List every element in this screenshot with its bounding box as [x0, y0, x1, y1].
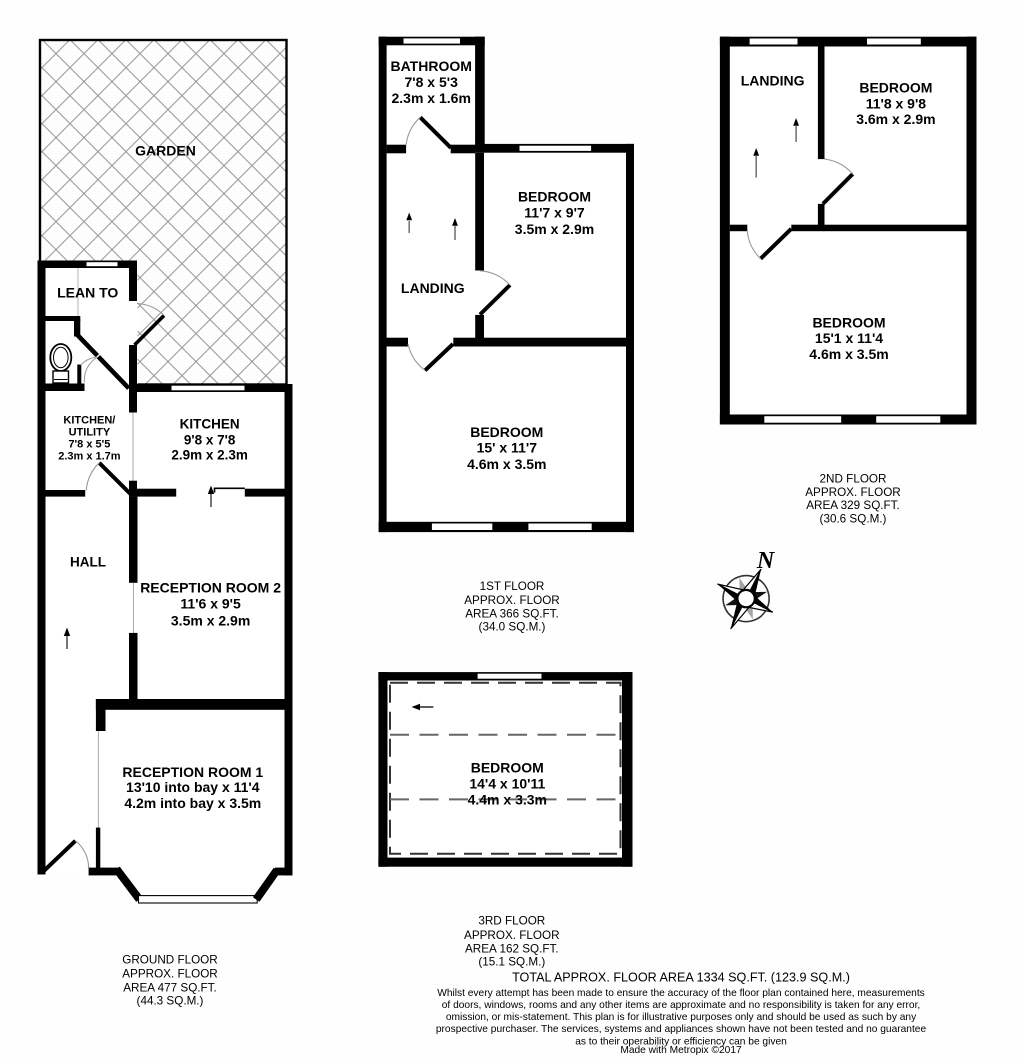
svg-text:13'10 into bay x 11'4: 13'10 into bay x 11'4	[126, 779, 260, 795]
svg-text:AREA 329 SQ.FT.: AREA 329 SQ.FT.	[806, 499, 900, 512]
svg-text:2.3m x 1.6m: 2.3m x 1.6m	[392, 90, 471, 106]
svg-text:KITCHEN: KITCHEN	[180, 417, 240, 432]
svg-text:omission, or mis-statement. Th: omission, or mis-statement. This plan is…	[446, 1012, 917, 1023]
svg-text:15' x 11'7: 15' x 11'7	[477, 440, 538, 456]
svg-text:KITCHEN/: KITCHEN/	[63, 415, 115, 427]
svg-text:UTILITY: UTILITY	[69, 426, 111, 438]
svg-text:4.6m x 3.5m: 4.6m x 3.5m	[809, 346, 888, 362]
svg-text:(34.0 SQ.M.): (34.0 SQ.M.)	[479, 621, 546, 634]
svg-text:11'7 x 9'7: 11'7 x 9'7	[524, 205, 585, 221]
svg-text:4.6m x 3.5m: 4.6m x 3.5m	[467, 456, 546, 472]
svg-text:7'8 x 5'3: 7'8 x 5'3	[405, 74, 459, 90]
svg-text:BEDROOM: BEDROOM	[471, 760, 544, 776]
svg-text:Made with Metropix ©2017: Made with Metropix ©2017	[620, 1045, 742, 1056]
svg-text:BEDROOM: BEDROOM	[470, 424, 543, 440]
svg-text:3.5m x 2.9m: 3.5m x 2.9m	[515, 221, 594, 237]
svg-text:7'8 x 5'5: 7'8 x 5'5	[68, 439, 110, 451]
svg-text:15'1 x 11'4: 15'1 x 11'4	[815, 330, 883, 346]
svg-text:GARDEN: GARDEN	[135, 143, 196, 159]
svg-text:2.3m x 1.7m: 2.3m x 1.7m	[58, 451, 121, 463]
svg-text:2.9m x 2.3m: 2.9m x 2.3m	[171, 447, 248, 462]
svg-text:(30.6 SQ.M.): (30.6 SQ.M.)	[820, 513, 887, 526]
svg-text:AREA 366 SQ.FT.: AREA 366 SQ.FT.	[465, 607, 559, 620]
svg-text:AREA 162 SQ.FT.: AREA 162 SQ.FT.	[465, 943, 559, 956]
svg-text:TOTAL APPROX. FLOOR AREA 1334: TOTAL APPROX. FLOOR AREA 1334 SQ.FT. (12…	[512, 970, 850, 984]
svg-text:4.4m x 3.3m: 4.4m x 3.3m	[468, 792, 547, 808]
svg-text:4.2m into bay x 3.5m: 4.2m into bay x 3.5m	[124, 795, 261, 811]
svg-text:of doors, windows, rooms and a: of doors, windows, rooms and any other i…	[442, 1000, 920, 1011]
svg-text:LEAN TO: LEAN TO	[57, 284, 118, 300]
svg-text:1ST FLOOR: 1ST FLOOR	[480, 580, 545, 593]
svg-text:AREA 477 SQ.FT.: AREA 477 SQ.FT.	[123, 981, 217, 994]
svg-text:14'4 x 10'11: 14'4 x 10'11	[469, 776, 545, 792]
svg-text:N: N	[756, 548, 776, 574]
svg-text:3.5m x 2.9m: 3.5m x 2.9m	[171, 612, 250, 628]
svg-text:(15.1 SQ.M.): (15.1 SQ.M.)	[478, 956, 545, 969]
svg-text:(44.3 SQ.M.): (44.3 SQ.M.)	[137, 995, 204, 1008]
svg-text:11'6 x 9'5: 11'6 x 9'5	[180, 595, 241, 611]
svg-text:APPROX. FLOOR: APPROX. FLOOR	[122, 968, 217, 981]
svg-text:APPROX. FLOOR: APPROX. FLOOR	[464, 594, 559, 607]
svg-text:9'8 x 7'8: 9'8 x 7'8	[184, 432, 236, 447]
svg-text:BEDROOM: BEDROOM	[812, 315, 885, 331]
svg-text:BEDROOM: BEDROOM	[859, 80, 932, 96]
svg-text:APPROX. FLOOR: APPROX. FLOOR	[805, 486, 900, 499]
svg-text:LANDING: LANDING	[741, 73, 805, 89]
svg-text:GROUND FLOOR: GROUND FLOOR	[122, 953, 217, 966]
svg-text:LANDING: LANDING	[401, 280, 465, 296]
svg-text:2ND FLOOR: 2ND FLOOR	[820, 472, 887, 485]
svg-text:BEDROOM: BEDROOM	[518, 189, 591, 205]
svg-text:prospective purchaser. The ser: prospective purchaser. The services, sys…	[436, 1024, 927, 1035]
svg-text:HALL: HALL	[70, 555, 106, 570]
svg-text:RECEPTION ROOM 2: RECEPTION ROOM 2	[140, 579, 281, 595]
svg-text:BATHROOM: BATHROOM	[390, 58, 471, 74]
svg-text:3.6m x 2.9m: 3.6m x 2.9m	[856, 111, 935, 127]
svg-text:Whilst every attempt has been: Whilst every attempt has been made to en…	[437, 988, 925, 999]
svg-text:RECEPTION ROOM 1: RECEPTION ROOM 1	[122, 764, 263, 780]
svg-text:11'8 x 9'8: 11'8 x 9'8	[866, 95, 927, 111]
svg-text:3RD FLOOR: 3RD FLOOR	[478, 914, 545, 927]
svg-text:APPROX. FLOOR: APPROX. FLOOR	[464, 929, 559, 942]
